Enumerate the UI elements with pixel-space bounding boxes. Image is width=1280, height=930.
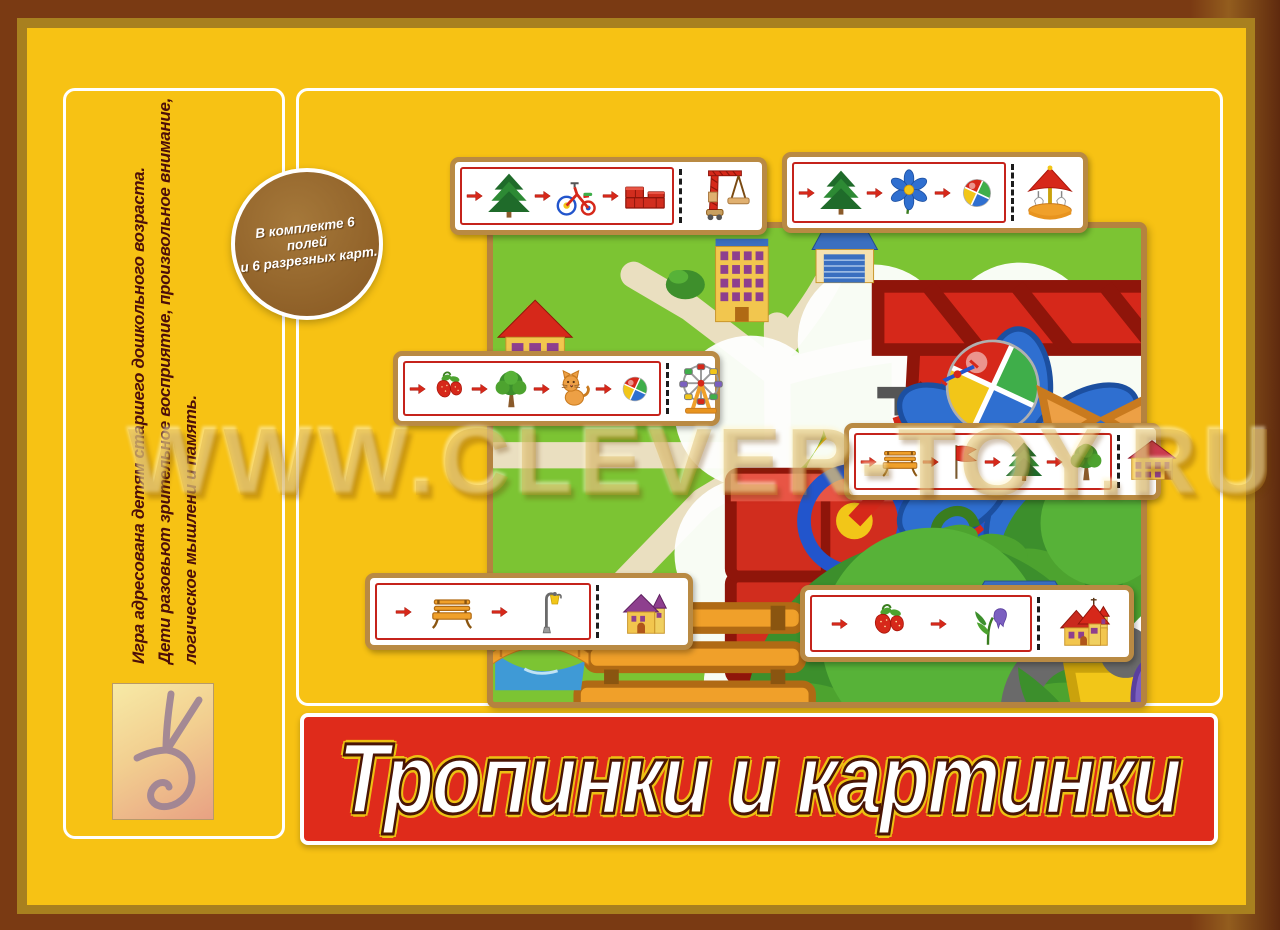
strawberry-icon [865,600,913,648]
arrow-icon [533,186,553,206]
sequence-card-4 [844,423,1161,500]
bush-highlight [669,270,689,284]
leafy-tree-icon [1065,441,1107,483]
strawberry-icon [428,368,470,410]
sequence-zone [460,167,674,225]
toy-blocks-icon [621,172,669,220]
answer-zone [1017,157,1083,228]
carousel-icon [1021,164,1079,222]
fir-tree-icon [485,172,533,220]
sequence-card-6 [800,585,1134,662]
arrow-icon [797,183,817,203]
arrow-icon [594,379,614,399]
age-description-text: Игра адресована детям старшего дошкольно… [126,98,204,664]
arrow-icon [490,602,510,622]
sequence-card-2 [782,152,1088,233]
arrow-icon [983,452,1003,472]
contents-badge: В комплекте 6 полей и 6 разрезных карт. [231,168,383,320]
arrow-icon [532,379,552,399]
ball-icon [614,368,656,410]
sequence-card-1 [450,157,767,235]
answer-zone [685,162,762,230]
game-box-cover: Игра адресована детям старшего дошкольно… [0,0,1280,930]
cut-line [679,169,682,223]
arrow-icon [465,186,485,206]
arrow-icon [470,379,490,399]
answer-zone [602,578,688,645]
castle-house-icon [1057,595,1115,653]
crane-swing-icon [695,167,753,225]
arrow-icon [921,452,941,472]
cut-line [1037,597,1040,650]
arrow-icon [933,183,953,203]
arrow-icon [601,186,621,206]
cut-line [666,363,669,414]
answer-zone [1123,428,1181,495]
bluebell-flower-icon [964,600,1012,648]
title-banner: Тропинки и картинки [300,713,1218,845]
arrow-icon [394,602,414,622]
sequence-zone [403,361,661,416]
bench-icon [428,588,476,636]
tricycle-icon [553,172,601,220]
product-title: Тропинки и картинки [339,722,1180,837]
arrow-icon [865,183,885,203]
cut-line [1011,164,1014,221]
arrow-icon [408,379,428,399]
cut-line [1117,435,1120,488]
street-lamp-icon [524,588,572,636]
arrow-icon [830,614,850,634]
sequence-card-3 [393,351,720,426]
cut-line [596,585,599,638]
apartment-building [716,239,769,322]
description-line-3: логическое мышлени и память. [178,98,204,664]
leafy-tree-icon [490,368,532,410]
sequence-zone [854,433,1112,490]
ball-icon [953,169,1001,217]
arrow-icon [859,452,879,472]
kitten-icon [552,368,594,410]
fir-tree-icon [817,169,865,217]
description-line-2: Дети разовьют зрительное восприятие, про… [152,98,178,664]
arrow-icon [929,614,949,634]
publisher-logo [112,683,214,820]
contents-badge-text: В комплекте 6 полей и 6 разрезных карт. [233,211,382,277]
red-flag-icon [941,441,983,483]
blue-flower-icon [885,169,933,217]
sequence-card-5 [365,573,693,650]
answer-zone [1043,590,1129,657]
purple-roof-house-icon [616,583,674,641]
publisher-monogram-icon [113,684,213,819]
bench-icon [879,441,921,483]
answer-zone [672,356,730,421]
sequence-zone [810,595,1032,652]
sequence-zone [375,583,591,640]
ferris-wheel-icon [672,360,730,418]
garage [812,228,877,283]
description-line-1: Игра адресована детям старшего дошкольно… [126,98,152,664]
sequence-zone [792,162,1006,223]
arrow-icon [1045,452,1065,472]
red-roof-house-icon [1123,433,1181,491]
fir-tree-icon [1003,441,1045,483]
